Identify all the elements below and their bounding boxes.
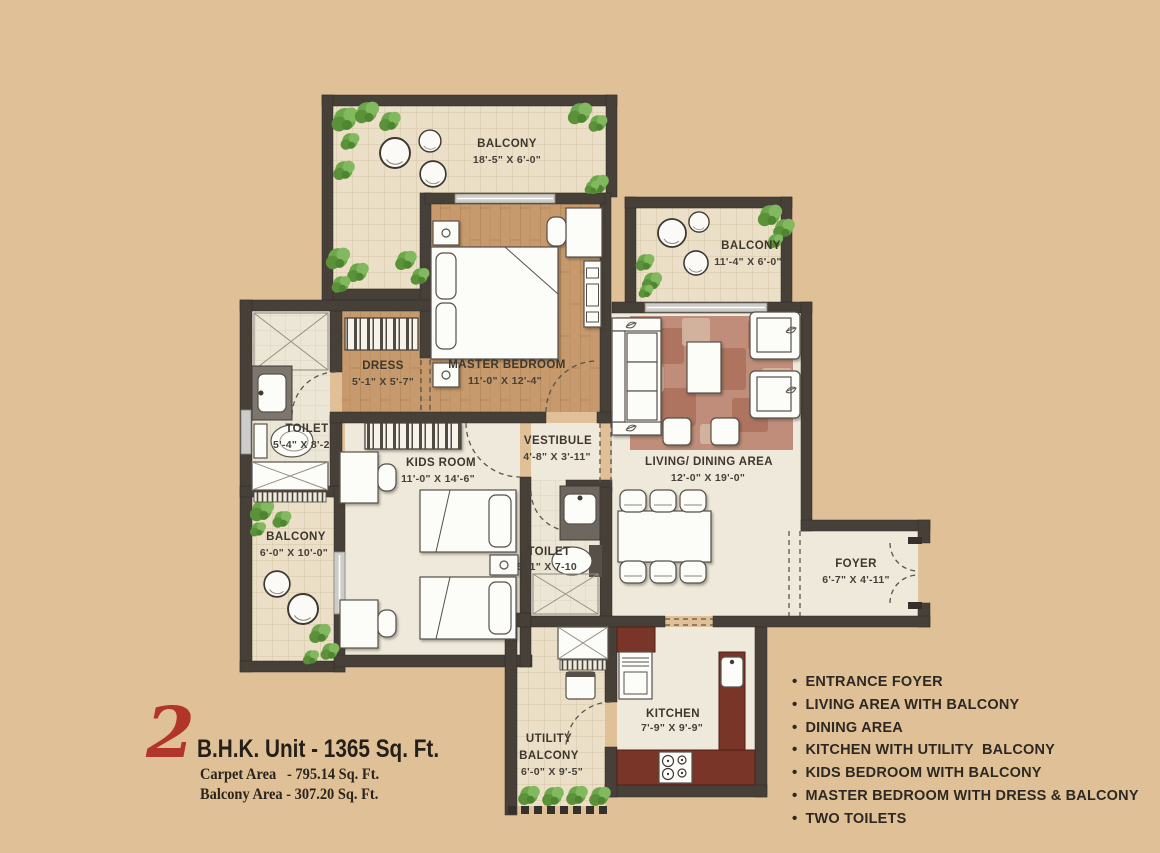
wardrobe xyxy=(365,423,461,449)
dims-balcony-right: 11'-4" X 6'-0" xyxy=(714,256,782,268)
door-leaf xyxy=(908,602,922,609)
label-master-bedroom: MASTER BEDROOM xyxy=(448,359,565,371)
ottoman xyxy=(663,418,691,445)
label-toilet-2: TOILET xyxy=(527,546,570,558)
pillow xyxy=(436,253,456,299)
label-living-dining: LIVING/ DINING AREA xyxy=(645,456,773,468)
dining-table xyxy=(618,511,711,562)
round-table xyxy=(288,594,318,624)
bullet-icon: • xyxy=(792,808,797,830)
label-balcony-top: BALCONY xyxy=(477,138,537,150)
dining-chair xyxy=(680,490,706,512)
label-kids-room: KIDS ROOM xyxy=(406,457,476,469)
dining-chair xyxy=(620,490,646,512)
unit-title: B.H.K. Unit - 1365 Sq. Ft. xyxy=(197,735,439,764)
dims-vestibule: 4'-8" X 3'-11" xyxy=(523,451,591,463)
railing-dots xyxy=(508,806,607,814)
wardrobe xyxy=(345,318,418,350)
feature-item: •KIDS BEDROOM WITH BALCONY xyxy=(792,762,1139,785)
feature-item: •ENTRANCE FOYER xyxy=(792,671,1139,694)
round-table xyxy=(380,138,410,168)
label-toilet-1: TOILET xyxy=(285,423,328,435)
feature-list: •ENTRANCE FOYER •LIVING AREA WITH BALCON… xyxy=(792,671,1139,831)
vent-grill xyxy=(560,660,606,670)
dress-furniture xyxy=(345,318,418,350)
unit-count-numeral: 2 xyxy=(146,698,195,768)
bullet-icon: • xyxy=(792,717,797,739)
round-chair xyxy=(420,161,446,187)
feature-item: •MASTER BEDROOM WITH DRESS & BALCONY xyxy=(792,785,1139,808)
bullet-icon: • xyxy=(792,739,797,761)
dining-chair xyxy=(680,561,706,583)
label-balcony-right: BALCONY xyxy=(721,240,781,252)
nightstand xyxy=(433,221,459,245)
dims-living-dining: 12'-0" X 19'-0" xyxy=(671,472,745,484)
dims-foyer: 6'-7" X 4'-11" xyxy=(822,574,890,586)
desk xyxy=(340,600,378,648)
dining-chair xyxy=(620,561,646,583)
dims-utility: 6'-0" X 9'-5" xyxy=(521,766,583,778)
chair xyxy=(547,217,566,246)
desk xyxy=(340,452,378,503)
feature-item: •TWO TOILETS xyxy=(792,808,1139,831)
feature-item: •LIVING AREA WITH BALCONY xyxy=(792,694,1139,717)
dims-toilet-2: 5'-1" X 7-10 xyxy=(517,561,577,573)
label-vestibule: VESTIBULE xyxy=(524,435,592,447)
round-table xyxy=(658,219,686,247)
dims-master-bedroom: 11'-0" X 12'-4" xyxy=(468,375,542,387)
door-leaf xyxy=(908,537,922,544)
feature-item: •KITCHEN WITH UTILITY BALCONY xyxy=(792,739,1139,762)
label-foyer: FOYER xyxy=(835,558,877,570)
chair xyxy=(378,610,396,637)
desk xyxy=(566,208,602,257)
bullet-icon: • xyxy=(792,785,797,807)
label-balcony-left: BALCONY xyxy=(266,531,326,543)
ottoman xyxy=(711,418,739,445)
vent-grill xyxy=(254,492,326,502)
dims-dress: 5'-1" X 5'-7" xyxy=(352,376,414,388)
label-dress: DRESS xyxy=(362,360,404,372)
label-utility-2: BALCONY xyxy=(519,750,579,762)
chair xyxy=(378,464,396,491)
pillow xyxy=(489,495,511,547)
balcony-area-line: Balcony Area - 307.20 Sq. Ft. xyxy=(200,786,378,804)
bullet-icon: • xyxy=(792,694,797,716)
toilet1-window xyxy=(241,410,251,454)
feature-item: •DINING AREA xyxy=(792,717,1139,740)
label-kitchen: KITCHEN xyxy=(646,708,700,720)
round-chair xyxy=(419,130,441,152)
wc-tank xyxy=(254,424,267,458)
bullet-icon: • xyxy=(792,671,797,693)
kitchen-counter xyxy=(617,627,655,652)
nightstand xyxy=(490,555,518,575)
round-chair xyxy=(689,212,709,232)
carpet-area-line: Carpet Area - 795.14 Sq. Ft. xyxy=(200,766,379,784)
dims-balcony-top: 18'-5" X 6'-0" xyxy=(473,154,541,166)
coffee-table xyxy=(687,342,721,393)
bullet-icon: • xyxy=(792,762,797,784)
dining-chair xyxy=(650,561,676,583)
dims-kitchen: 7'-9" X 9'-9" xyxy=(641,722,703,734)
label-utility-1: UTILITY xyxy=(526,733,572,745)
round-chair xyxy=(684,251,708,275)
dining-chair xyxy=(650,490,676,512)
floor-plan-page: BALCONY 18'-5" X 6'-0" MASTER BEDROOM 11… xyxy=(0,0,1160,853)
pillow xyxy=(489,582,511,634)
round-table xyxy=(264,571,290,597)
pillow xyxy=(436,303,456,349)
dims-kids-room: 11'-0" X 14'-6" xyxy=(401,473,475,485)
dims-balcony-left: 6'-0" X 10'-0" xyxy=(260,547,328,559)
dims-toilet-1: 5'-4" X 8'-2" xyxy=(273,439,335,451)
